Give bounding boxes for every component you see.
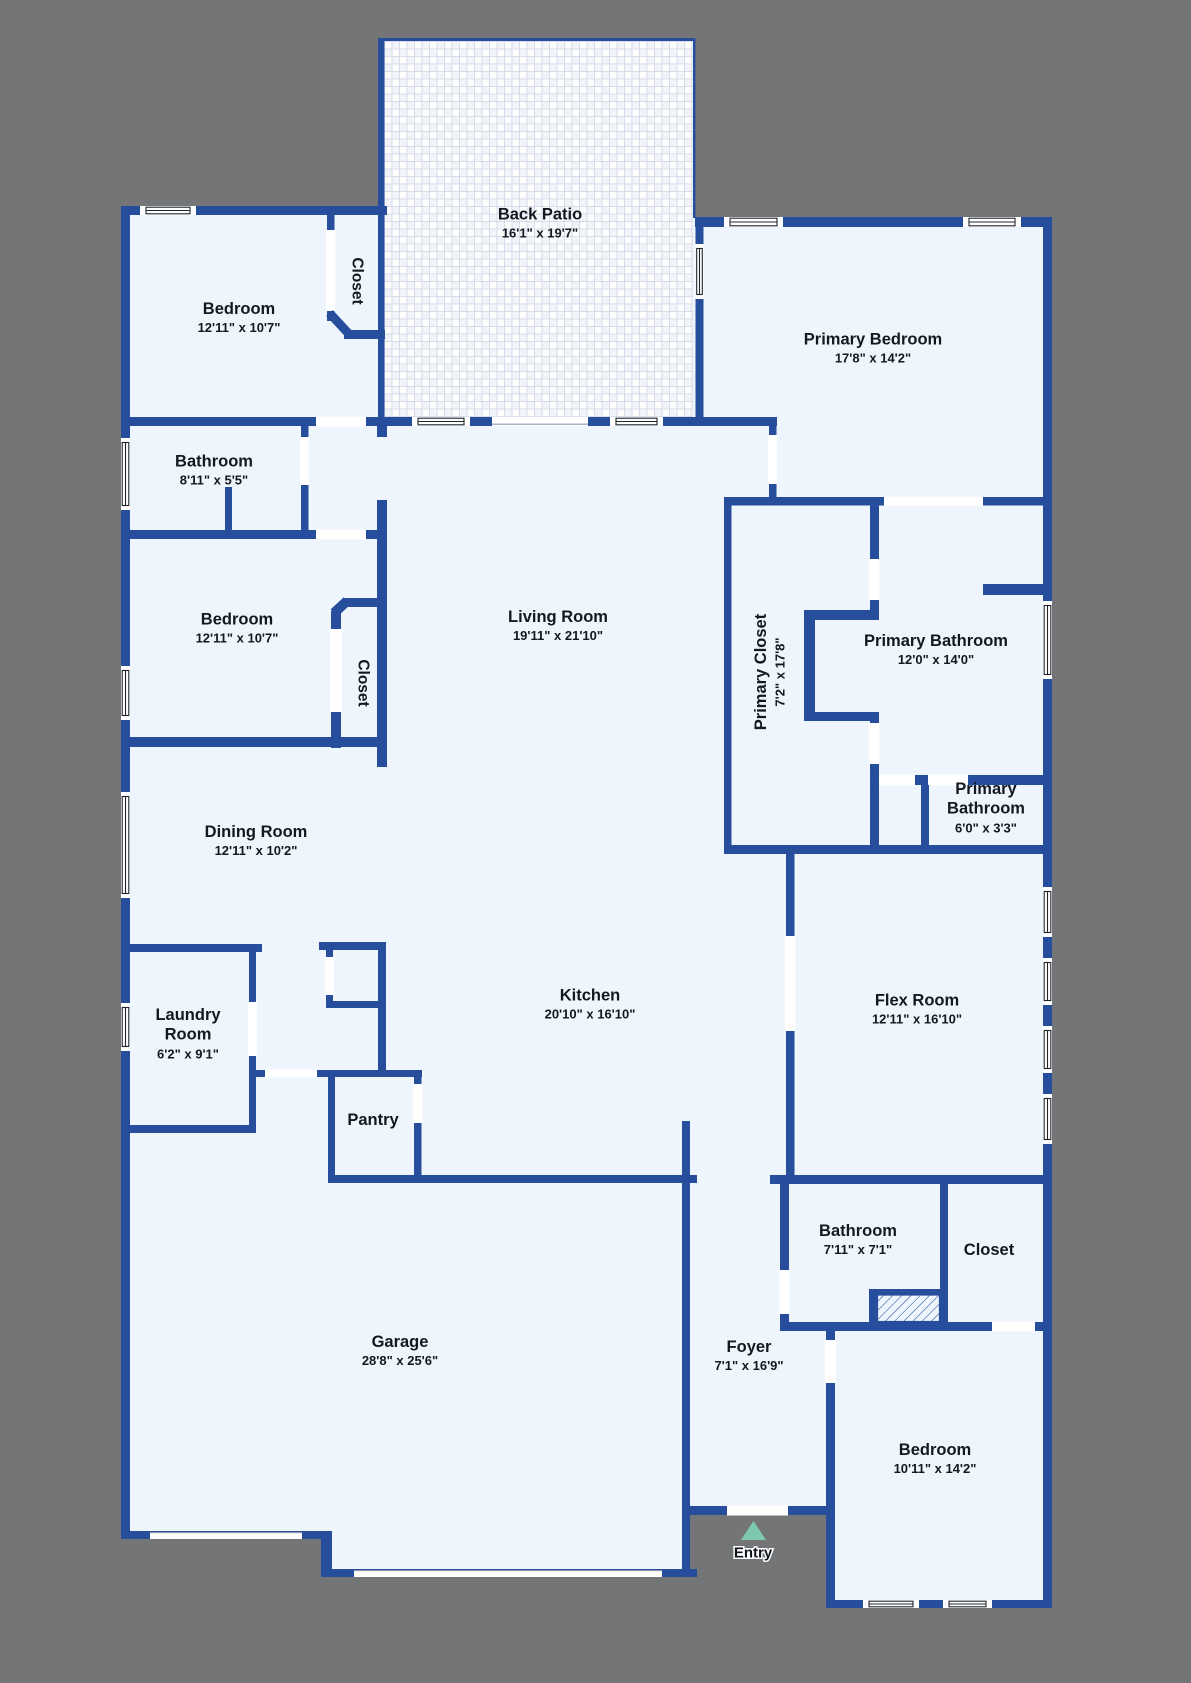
- svg-text:10'11" x 14'2": 10'11" x 14'2": [894, 1461, 977, 1476]
- svg-text:Bedroom: Bedroom: [201, 611, 273, 629]
- svg-text:28'8" x 25'6": 28'8" x 25'6": [362, 1353, 438, 1368]
- svg-text:Primary: Primary: [955, 780, 1017, 798]
- svg-text:Entry: Entry: [734, 1545, 773, 1562]
- svg-text:Bathroom: Bathroom: [947, 800, 1025, 818]
- svg-text:Laundry: Laundry: [155, 1006, 221, 1024]
- svg-text:Bedroom: Bedroom: [899, 1441, 971, 1459]
- svg-text:Garage: Garage: [372, 1333, 429, 1351]
- svg-text:12'0" x 14'0": 12'0" x 14'0": [898, 652, 974, 667]
- svg-text:Primary Bathroom: Primary Bathroom: [864, 632, 1008, 650]
- svg-text:Foyer: Foyer: [727, 1338, 773, 1356]
- svg-text:7'2" x 17'8": 7'2" x 17'8": [773, 637, 788, 706]
- svg-text:Closet: Closet: [355, 659, 372, 706]
- svg-text:Bedroom: Bedroom: [203, 300, 275, 318]
- svg-text:12'11" x 16'10": 12'11" x 16'10": [872, 1012, 962, 1027]
- svg-text:Room: Room: [165, 1026, 212, 1044]
- svg-text:Back Patio: Back Patio: [498, 206, 582, 224]
- svg-text:Kitchen: Kitchen: [560, 987, 621, 1005]
- svg-text:Bathroom: Bathroom: [175, 453, 253, 471]
- svg-text:Primary Closet: Primary Closet: [752, 613, 770, 730]
- svg-text:19'11" x 21'10": 19'11" x 21'10": [513, 628, 603, 643]
- svg-text:Pantry: Pantry: [347, 1111, 399, 1129]
- svg-text:Closet: Closet: [964, 1241, 1015, 1259]
- svg-text:12'11" x 10'7": 12'11" x 10'7": [196, 631, 279, 646]
- svg-text:20'10" x 16'10": 20'10" x 16'10": [545, 1007, 636, 1022]
- svg-text:7'11" x 7'1": 7'11" x 7'1": [824, 1242, 892, 1257]
- svg-text:16'1" x 19'7": 16'1" x 19'7": [502, 226, 578, 241]
- svg-text:Bathroom: Bathroom: [819, 1222, 897, 1240]
- svg-text:6'0" x 3'3": 6'0" x 3'3": [955, 821, 1017, 836]
- svg-text:Primary Bedroom: Primary Bedroom: [804, 331, 942, 349]
- svg-text:7'1" x 16'9": 7'1" x 16'9": [714, 1358, 783, 1373]
- svg-text:17'8" x 14'2": 17'8" x 14'2": [835, 351, 911, 366]
- svg-text:8'11" x 5'5": 8'11" x 5'5": [180, 473, 248, 488]
- svg-text:12'11" x 10'2": 12'11" x 10'2": [215, 843, 298, 858]
- svg-text:6'2" x 9'1": 6'2" x 9'1": [157, 1047, 219, 1062]
- svg-text:Dining Room: Dining Room: [205, 823, 308, 841]
- svg-text:Closet: Closet: [349, 257, 366, 304]
- svg-text:Living Room: Living Room: [508, 608, 608, 626]
- svg-text:12'11" x 10'7": 12'11" x 10'7": [198, 320, 281, 335]
- svg-text:Flex Room: Flex Room: [875, 992, 959, 1010]
